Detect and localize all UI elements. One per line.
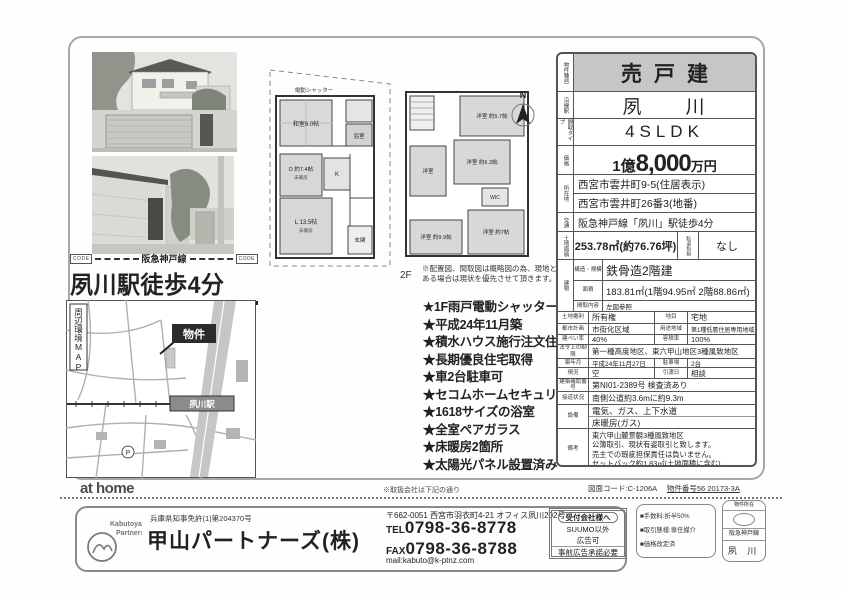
field-label: 面積 bbox=[574, 281, 603, 300]
2f-room2: 洋室 約6.3帖 bbox=[454, 140, 510, 184]
field-label: 容積率 bbox=[655, 335, 688, 344]
broker-box-title: 受付会社様へ bbox=[558, 512, 618, 523]
handover: 相談 bbox=[688, 368, 755, 378]
svg-text:玄関: 玄関 bbox=[354, 236, 366, 244]
svg-text:和室6.0帖: 和室6.0帖 bbox=[293, 120, 319, 128]
room-layout: 4SLDK bbox=[574, 119, 755, 145]
field-label: 物件種目 bbox=[558, 54, 574, 91]
item-number: 物件番号56 20173-3A bbox=[667, 484, 740, 493]
svg-text:床暖房: 床暖房 bbox=[299, 227, 313, 234]
floor-area-ratio: 100% bbox=[688, 335, 755, 344]
railway-line bbox=[95, 258, 138, 260]
2f-wic: WIC bbox=[482, 188, 508, 206]
broker-note: ■価格改定済 bbox=[640, 538, 712, 552]
field-label: 所在地 bbox=[558, 175, 574, 212]
north-arrow-icon: N bbox=[510, 88, 536, 130]
remark-line: セットバック約1.83㎡(土地面積に含む) bbox=[592, 459, 755, 467]
parking: 2台 bbox=[688, 359, 755, 367]
2f-stairs bbox=[410, 96, 434, 130]
photo2-stone-pillar bbox=[196, 212, 214, 246]
contact-numbers: TEL0798-36-8778 FAX0798-36-8788 bbox=[386, 519, 517, 561]
station-name: 夙 川 bbox=[574, 92, 755, 118]
svg-text:N: N bbox=[520, 90, 527, 100]
photo1-ground bbox=[92, 148, 237, 152]
price-unit: 万円 bbox=[691, 156, 717, 175]
railway-line bbox=[190, 258, 233, 260]
private-road: なし bbox=[699, 232, 755, 259]
field-label: 地目 bbox=[655, 312, 688, 323]
svg-text:床暖房: 床暖房 bbox=[294, 174, 308, 181]
field-label: 備考 bbox=[558, 429, 589, 467]
building-area: 183.81㎡(1階94.95㎡ 2階88.86㎡) bbox=[603, 281, 755, 300]
spec-table: 物件種目 売戸建 沿線駅 夙 川 間取タイプ 4SLDK 価格 1億8,000万… bbox=[556, 52, 757, 467]
built-date: 平成24年11月27日 bbox=[589, 359, 655, 367]
current-status: 空 bbox=[589, 368, 655, 378]
field-label: 土地面積 bbox=[558, 232, 574, 259]
svg-text:洋室: 洋室 bbox=[422, 167, 434, 175]
drawing-code: 図面コード:C-1206A bbox=[588, 484, 657, 493]
address-1: 西宮市雲井町9-5(住居表示) bbox=[574, 175, 755, 194]
mountain-icon bbox=[93, 545, 112, 553]
layout-reference: 左図参照 bbox=[603, 301, 755, 311]
photo-house-exterior bbox=[92, 52, 237, 152]
field-label: 間取タイプ bbox=[558, 119, 574, 145]
photo-entrance bbox=[92, 156, 234, 254]
broker-line: 広告可 bbox=[552, 535, 624, 546]
land-area: 253.78㎡(約76.76坪) bbox=[574, 232, 678, 259]
tel-label: TEL bbox=[386, 525, 405, 536]
athome-logo: at home bbox=[80, 480, 134, 497]
neighborhood-map: 夙川駅 物件 P 周辺環境MAP bbox=[66, 300, 256, 478]
field-label: 構造・規模 bbox=[574, 260, 603, 280]
map-parking-icon: P bbox=[122, 446, 134, 458]
city-planning: 市街化区域 bbox=[589, 324, 655, 334]
field-label: 引渡日 bbox=[655, 368, 688, 378]
property-type: 売戸建 bbox=[574, 54, 755, 91]
dotted-separator bbox=[60, 497, 782, 499]
station-code-box-left: CODE bbox=[70, 254, 92, 264]
field-label: 間取内容 bbox=[574, 301, 603, 311]
building-confirmation: 第NI01-2389号 検査済あり bbox=[589, 379, 755, 391]
remark-line: 売主での瑕疵担保責任は負いません。 bbox=[592, 450, 755, 459]
photo2-pole bbox=[218, 156, 224, 254]
coverage-ratio: 40% bbox=[589, 335, 655, 344]
1f-entrance: 玄関 bbox=[348, 226, 372, 254]
svg-text:洋室 約6.3帖: 洋室 約6.3帖 bbox=[466, 158, 498, 166]
handling-note: ※取扱会社は下記の通り bbox=[383, 485, 460, 495]
floor2-caption: 2F bbox=[400, 270, 412, 281]
1f-dining: D 約7.4帖 床暖房 bbox=[280, 154, 322, 196]
1f-kitchen: K bbox=[324, 158, 350, 190]
2f-room5: 洋室 約7帖 bbox=[468, 210, 524, 254]
company-name: 甲山パートナーズ(株) bbox=[147, 525, 360, 555]
company-logo: Kabutoyama Partners bbox=[84, 517, 142, 563]
field-label: 土地権利 bbox=[558, 312, 589, 323]
stamp-icon bbox=[733, 513, 755, 526]
svg-text:K: K bbox=[335, 172, 339, 178]
tab-station: 夙 川 bbox=[723, 541, 765, 561]
1f-living: L 13.5帖 床暖房 bbox=[280, 198, 332, 254]
price-oku: 1億 bbox=[612, 155, 635, 176]
rail-line-name: 阪急神戸線 bbox=[142, 252, 187, 265]
svg-text:浴室: 浴室 bbox=[353, 132, 365, 140]
logo-text-1: Kabutoyama bbox=[110, 521, 142, 528]
field-label: 交通 bbox=[558, 213, 574, 231]
svg-text:WIC: WIC bbox=[490, 195, 500, 201]
price: 1億8,000万円 bbox=[574, 146, 755, 174]
remark-line: 東六甲山麓景観3種風致地区 bbox=[592, 431, 755, 440]
map-station-label: 夙川駅 bbox=[189, 399, 215, 409]
broker-notice-box: 受付会社様へ SUUMO以外 広告可 事前広告承諾必要 bbox=[551, 510, 625, 557]
remark-line: 公簿取引、現状有姿取引と致します。 bbox=[592, 440, 755, 449]
photo1-window bbox=[162, 79, 174, 88]
field-label: 建築確認番号 bbox=[558, 379, 589, 391]
field-label: 設備 bbox=[558, 405, 589, 428]
broker-line: 事前広告承諾必要 bbox=[552, 546, 624, 558]
svg-text:洋室 約9.9帖: 洋室 約9.9帖 bbox=[420, 233, 452, 241]
map-property-label: 物件 bbox=[183, 327, 205, 341]
2f-room3: 洋室 bbox=[410, 146, 446, 196]
tab-header: 物件所在 bbox=[723, 501, 765, 511]
photo1-gate-opening bbox=[200, 114, 213, 146]
license-number: 兵庫県知事免許(1)第204370号 bbox=[150, 513, 252, 524]
logo-text-2: Partners bbox=[116, 530, 142, 537]
floorplan-1f: 電動シャッター 和室6.0帖 浴室 D 約7.4帖 床暖房 K L 13.5帖 … bbox=[262, 58, 397, 270]
legal-restrictions: 第一種高度地区、東六甲山地区3種風致地区 bbox=[589, 345, 755, 358]
address-2: 西宮市雲井町26番3(地番) bbox=[574, 194, 755, 213]
field-label: 建ぺい率 bbox=[558, 335, 589, 344]
plan-disclaimer: ※配置図、間取図は概略図の為、現地と相違ある場合は現状を優先させて頂きます。 bbox=[422, 264, 572, 283]
photo2-door bbox=[148, 198, 163, 240]
access-banner: CODE 阪急神戸線 CODE 夙川駅徒歩4分 bbox=[70, 252, 258, 305]
access-route: 阪急神戸線「夙川」駅徒歩4分 bbox=[574, 213, 755, 231]
photo1-window bbox=[142, 79, 156, 88]
field-label: 建物 bbox=[558, 260, 574, 311]
structure: 鉄骨造2階建 bbox=[603, 260, 755, 280]
sheet-code: 図面コード:C-1206A 物件番号56 20173-3A bbox=[588, 483, 740, 494]
field-label: 法令上の制限 bbox=[558, 345, 589, 358]
road-access: 南側公道約3.6mに約9.3m bbox=[589, 392, 755, 404]
land-rights: 所有権 bbox=[589, 312, 655, 323]
broker-note: ■手数料:折半50% bbox=[640, 510, 712, 524]
svg-text:洋室 約7帖: 洋室 約7帖 bbox=[483, 228, 510, 236]
2f-room4: 洋室 約9.9帖 bbox=[410, 220, 462, 254]
1f-washitsu: 和室6.0帖 bbox=[280, 100, 332, 146]
map-title: 周辺環境MAP bbox=[74, 308, 84, 372]
station-code-box-right: CODE bbox=[236, 254, 258, 264]
company-email: mail:kabuto@k-ptnz.com bbox=[386, 556, 474, 565]
field-label: 都市計画 bbox=[558, 324, 589, 334]
broker-note: ■取引態様:専任媒介 bbox=[640, 524, 712, 538]
zoning: 第1種低層住居専用地域 bbox=[688, 324, 755, 334]
utilities-1: 電気、ガス、上下水道 bbox=[589, 405, 755, 417]
filing-tab: 物件所在 阪急神戸線 夙 川 bbox=[722, 500, 766, 562]
remarks: 東六甲山麓景観3種風致地区 公簿取引、現状有姿取引と致します。 売主での瑕疵担保… bbox=[589, 429, 755, 467]
field-label: 接道状況 bbox=[558, 392, 589, 404]
svg-text:L 13.5帖: L 13.5帖 bbox=[295, 218, 317, 226]
field-label: 沿線駅 bbox=[558, 92, 574, 118]
broker-notes-box: ■手数料:折半50% ■取引態様:専任媒介 ■価格改定済 bbox=[636, 504, 716, 558]
tel-number: 0798-36-8778 bbox=[405, 518, 517, 537]
field-label: 駐車場 bbox=[655, 359, 688, 367]
field-label: 用途地域 bbox=[655, 324, 688, 334]
svg-text:洋室 約5.7帖: 洋室 約5.7帖 bbox=[476, 112, 508, 120]
photo1-window bbox=[186, 81, 197, 89]
tab-rail-line: 阪急神戸線 bbox=[723, 528, 765, 541]
broker-line: SUUMO以外 bbox=[552, 524, 624, 535]
1f-shutter-label: 電動シャッター bbox=[295, 86, 334, 94]
photo1-awning bbox=[160, 92, 194, 98]
field-label: 価格 bbox=[558, 146, 574, 174]
field-label: 現況 bbox=[558, 368, 589, 378]
svg-text:P: P bbox=[126, 450, 131, 457]
utilities-2: 床暖房(ガス) bbox=[589, 417, 755, 428]
field-label: 築年月 bbox=[558, 359, 589, 367]
price-man: 8,000 bbox=[636, 150, 691, 178]
land-category: 宅地 bbox=[688, 312, 755, 323]
field-label: 私道負担 bbox=[678, 232, 699, 259]
svg-text:D 約7.4帖: D 約7.4帖 bbox=[289, 165, 314, 173]
walk-time-headline: 夙川駅徒歩4分 bbox=[70, 265, 250, 300]
